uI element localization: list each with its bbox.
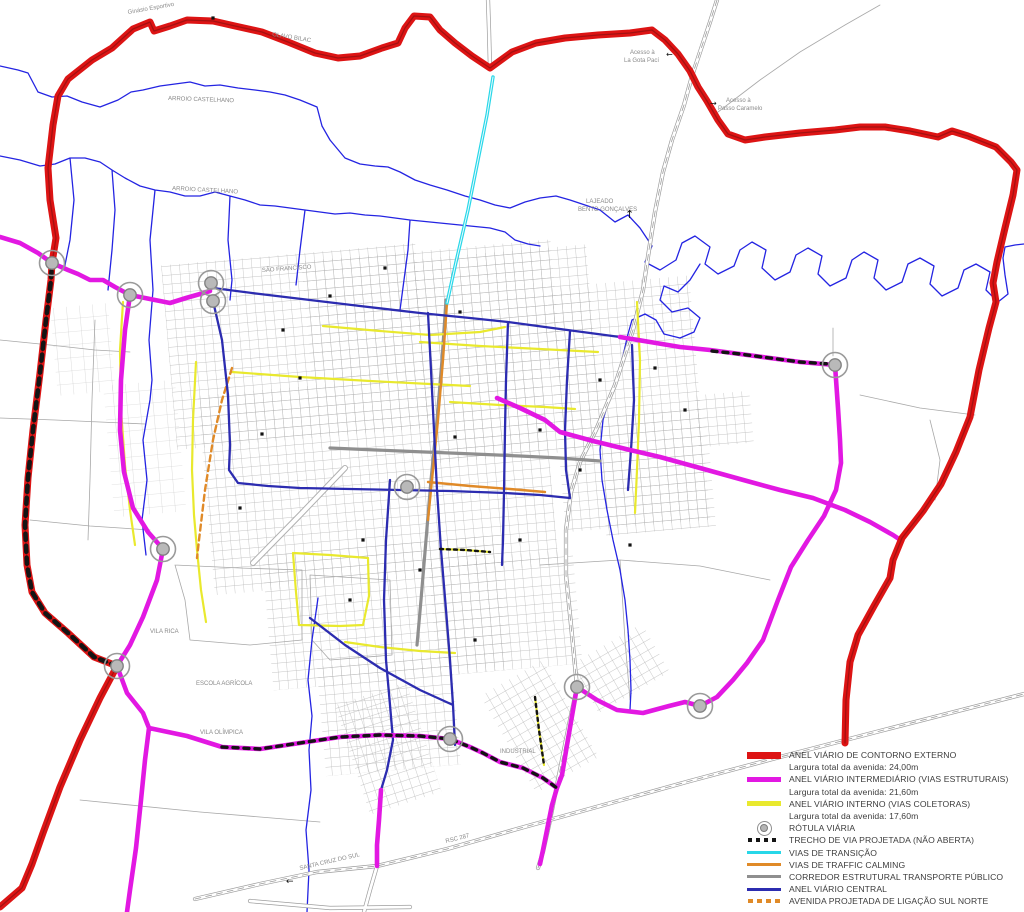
direction-arrow-icon: → bbox=[710, 99, 717, 108]
building-marker bbox=[298, 376, 301, 379]
legend-label: CORREDOR ESTRUTURAL TRANSPORTE PÚBLICO bbox=[789, 872, 1003, 882]
map-label: La Gota Pací bbox=[624, 58, 659, 64]
building-marker bbox=[361, 538, 364, 541]
rotula-inner-disc bbox=[205, 277, 217, 289]
map-label: VILA OLÍMPICA bbox=[200, 729, 243, 736]
legend-row: ANEL VIÁRIO INTERMEDIÁRIO (VIAS ESTRUTUR… bbox=[739, 773, 1024, 785]
legend-subrow: Largura total da avenida: 21,60m bbox=[739, 786, 1024, 798]
legend-swatch-bar-cyan bbox=[739, 851, 789, 854]
legend-row: RÓTULA VIÁRIA bbox=[739, 822, 1024, 834]
building-marker bbox=[281, 328, 284, 331]
legend-row: AVENIDA PROJETADA DE LIGAÇÃO SUL NORTE bbox=[739, 895, 1024, 907]
map-label: INDUSTRIAL bbox=[500, 749, 536, 755]
legend-swatch-none bbox=[739, 816, 789, 817]
grid-patch bbox=[694, 391, 753, 448]
building-marker bbox=[683, 408, 686, 411]
legend-swatch-rotula bbox=[739, 821, 789, 836]
legend-label: VIAS DE TRANSIÇÃO bbox=[789, 848, 877, 858]
legend-swatch-bar-orange bbox=[739, 863, 789, 866]
legend-swatch-none bbox=[739, 767, 789, 768]
legend-label: VIAS DE TRAFFIC CALMING bbox=[789, 860, 905, 870]
building-marker bbox=[653, 366, 656, 369]
legend-label: Largura total da avenida: 17,60m bbox=[789, 811, 918, 821]
urban-road-plan-map-page: Ginásio EsportivoOLAVO BILACARROIO CASTE… bbox=[0, 0, 1024, 912]
map-label: Ginásio Esportivo bbox=[127, 2, 175, 16]
legend-row: VIAS DE TRANSIÇÃO bbox=[739, 847, 1024, 859]
legend-label: ANEL VIÁRIO DE CONTORNO EXTERNO bbox=[789, 750, 956, 760]
direction-arrow-icon: ← bbox=[286, 877, 294, 887]
legend-swatch bbox=[747, 777, 781, 782]
map-label: Acesso à bbox=[726, 98, 751, 104]
legend-swatch bbox=[747, 801, 781, 806]
building-marker bbox=[211, 16, 214, 19]
building-marker bbox=[538, 428, 541, 431]
legend-swatch bbox=[747, 875, 781, 878]
building-marker bbox=[578, 468, 581, 471]
building-marker bbox=[473, 638, 476, 641]
rotula-inner-disc bbox=[401, 481, 413, 493]
map-legend: ANEL VIÁRIO DE CONTORNO EXTERNOLargura t… bbox=[739, 749, 1024, 907]
legend-swatch bbox=[747, 888, 781, 891]
building-marker bbox=[518, 538, 521, 541]
legend-swatch-spacer bbox=[747, 791, 781, 792]
legend-swatch-none bbox=[739, 791, 789, 792]
legend-label: Largura total da avenida: 24,00m bbox=[789, 762, 918, 772]
building-marker bbox=[238, 506, 241, 509]
legend-row: CORREDOR ESTRUTURAL TRANSPORTE PÚBLICO bbox=[739, 871, 1024, 883]
building-marker bbox=[453, 435, 456, 438]
legend-swatch-bar-yellow bbox=[739, 801, 789, 806]
legend-swatch bbox=[747, 752, 781, 759]
building-marker bbox=[348, 598, 351, 601]
legend-swatch-bar-blue bbox=[739, 888, 789, 891]
building-marker bbox=[260, 432, 263, 435]
building-marker bbox=[328, 294, 331, 297]
map-label: VILA RICA bbox=[150, 629, 179, 635]
legend-label: ANEL VIÁRIO INTERNO (VIAS COLETORAS) bbox=[789, 799, 970, 809]
legend-row: ANEL VIÁRIO DE CONTORNO EXTERNO bbox=[739, 749, 1024, 761]
legend-swatch-dash-black bbox=[739, 838, 789, 842]
map-label: ARROIO CASTELHANO bbox=[168, 96, 235, 104]
rotula-inner-disc bbox=[829, 359, 841, 371]
legend-label: Largura total da avenida: 21,60m bbox=[789, 787, 918, 797]
direction-arrow-icon: ↑ bbox=[625, 208, 634, 221]
rotula-inner-disc bbox=[571, 681, 583, 693]
legend-subrow: Largura total da avenida: 24,00m bbox=[739, 761, 1024, 773]
grid-patch bbox=[571, 624, 670, 713]
legend-row: ANEL VIÁRIO INTERNO (VIAS COLETORAS) bbox=[739, 798, 1024, 810]
legend-row: ANEL VIÁRIO CENTRAL bbox=[739, 883, 1024, 895]
rotula-inner-disc bbox=[444, 733, 456, 745]
legend-swatch-spacer bbox=[747, 816, 781, 817]
rotula-inner-disc bbox=[124, 289, 136, 301]
building-marker bbox=[418, 568, 421, 571]
map-label: Acesso à bbox=[630, 50, 655, 56]
city-street-grid bbox=[50, 215, 779, 814]
legend-label: ANEL VIÁRIO CENTRAL bbox=[789, 884, 887, 894]
legend-swatch bbox=[747, 863, 781, 866]
building-marker bbox=[383, 266, 386, 269]
legend-label: AVENIDA PROJETADA DE LIGAÇÃO SUL NORTE bbox=[789, 896, 988, 906]
legend-swatch bbox=[748, 899, 780, 903]
rotula-inner-disc bbox=[157, 543, 169, 555]
building-marker bbox=[628, 543, 631, 546]
legend-row: TRECHO DE VIA PROJETADA (NÃO ABERTA) bbox=[739, 834, 1024, 846]
legend-swatch bbox=[748, 838, 780, 842]
map-label: Passo Caramelo bbox=[718, 106, 763, 112]
legend-swatch-dash-orange bbox=[739, 899, 789, 903]
map-label: ESCOLA AGRÍCOLA bbox=[196, 680, 252, 687]
legend-swatch-bar-gray bbox=[739, 875, 789, 878]
building-marker bbox=[598, 378, 601, 381]
grid-patch bbox=[50, 303, 115, 396]
direction-arrow-icon: ← bbox=[666, 50, 673, 59]
legend-swatch bbox=[747, 851, 781, 854]
rotula-inner-disc bbox=[111, 660, 123, 672]
legend-swatch-bar-red bbox=[739, 752, 789, 759]
legend-swatch-spacer bbox=[747, 767, 781, 768]
legend-label: RÓTULA VIÁRIA bbox=[789, 823, 855, 833]
legend-label: TRECHO DE VIA PROJETADA (NÃO ABERTA) bbox=[789, 835, 974, 845]
rotula-inner-disc bbox=[46, 257, 58, 269]
rotula-inner-disc bbox=[207, 295, 219, 307]
building-marker bbox=[458, 310, 461, 313]
legend-row: VIAS DE TRAFFIC CALMING bbox=[739, 859, 1024, 871]
map-label: LAJEADO bbox=[586, 199, 614, 205]
legend-label: ANEL VIÁRIO INTERMEDIÁRIO (VIAS ESTRUTUR… bbox=[789, 774, 1008, 784]
rotula-inner-disc bbox=[694, 700, 706, 712]
rotula-icon bbox=[757, 821, 772, 836]
legend-swatch-bar-magenta bbox=[739, 777, 789, 782]
